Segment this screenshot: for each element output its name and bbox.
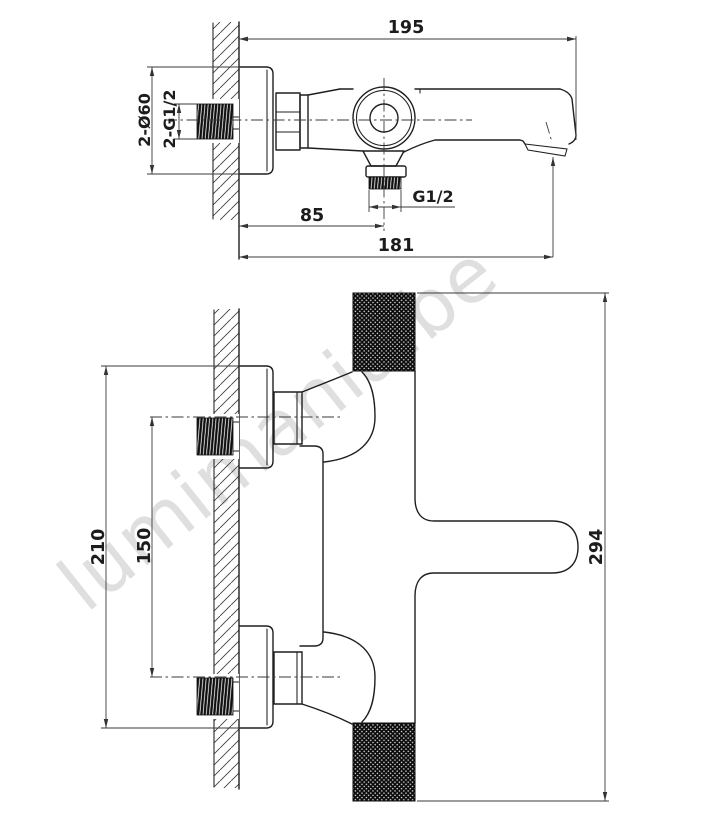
wall-union-upper — [193, 414, 239, 459]
dim-label-2-g12: 2-G1/2 — [160, 89, 179, 148]
dim-label-195: 195 — [388, 18, 425, 38]
dim-label-210: 210 — [89, 529, 109, 566]
knurled-handle-upper — [353, 293, 415, 371]
technical-drawing-sheet: lumimania.be — [0, 0, 705, 835]
wall-union-lower — [193, 674, 239, 719]
knurled-handle-lower — [353, 723, 415, 801]
dim-label-181: 181 — [378, 236, 415, 256]
dim-label-2-d60: 2-Ø60 — [135, 93, 154, 147]
wall-union-side — [194, 99, 239, 143]
faucet-dimension-drawing: lumimania.be — [0, 0, 705, 835]
dim-label-85: 85 — [300, 206, 324, 226]
dim-label-150: 150 — [135, 528, 155, 565]
dim-label-g12: G1/2 — [412, 187, 453, 206]
dim-label-294: 294 — [587, 529, 607, 566]
